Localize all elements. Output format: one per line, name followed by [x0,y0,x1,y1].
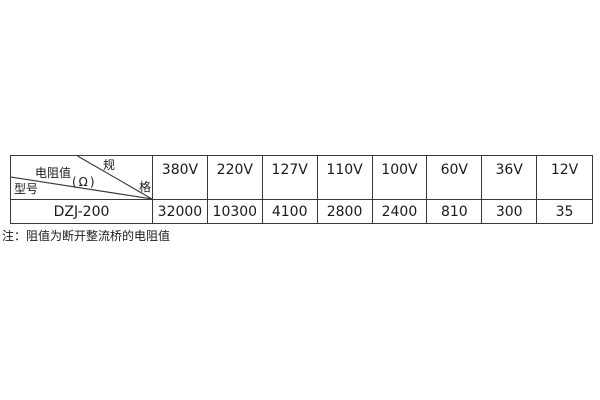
value-cell-12v: 35 [537,200,592,223]
column-header-220v: 220V [208,156,263,200]
column-header-380v: 380V [153,156,208,200]
table-note: 注：阻值为断开整流桥的电阻值 [2,229,170,244]
value-cell-380v: 32000 [153,200,208,223]
value-cell-220v: 10300 [208,200,263,223]
column-header-36v: 36V [482,156,537,200]
value-cell-127v: 4100 [263,200,318,223]
column-header-100v: 100V [373,156,428,200]
value-cell-60v: 810 [427,200,482,223]
value-cell-36v: 300 [482,200,537,223]
table-corner-cell: 规 格 电阻值 (Ω) 型号 [11,156,153,200]
column-header-12v: 12V [537,156,592,200]
column-header-110v: 110V [318,156,373,200]
value-cell-100v: 2400 [373,200,428,223]
column-header-127v: 127V [263,156,318,200]
corner-label-resistance: 电阻值 [35,167,71,179]
spec-table: 规 格 电阻值 (Ω) 型号 380V 220V 127V 110V 100V … [10,155,593,224]
page: 规 格 电阻值 (Ω) 型号 380V 220V 127V 110V 100V … [0,0,600,400]
corner-label-spec-char-2: 格 [139,181,151,193]
column-header-60v: 60V [427,156,482,200]
corner-label-spec-char-1: 规 [103,159,115,171]
model-cell: DZJ-200 [11,200,153,223]
value-cell-110v: 2800 [318,200,373,223]
corner-label-resistance-unit: (Ω) [72,176,97,188]
corner-label-model: 型号 [14,183,38,195]
